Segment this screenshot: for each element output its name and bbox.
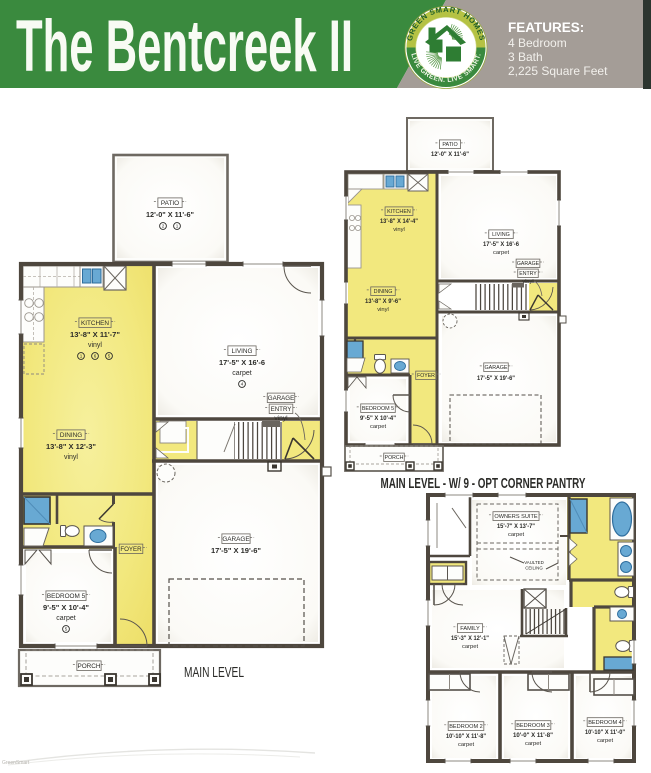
svg-text:PATIO: PATIO <box>161 200 179 207</box>
svg-text:carpet: carpet <box>458 742 475 748</box>
svg-text:KITCHEN: KITCHEN <box>81 320 109 327</box>
svg-text:carpet: carpet <box>508 532 525 538</box>
svg-text:carpet: carpet <box>232 370 252 377</box>
svg-text:KITCHEN: KITCHEN <box>387 209 411 215</box>
svg-text:ENTRY: ENTRY <box>271 406 292 413</box>
svg-text:12'-0" X 11'-6": 12'-0" X 11'-6" <box>431 152 469 158</box>
svg-text:PATIO: PATIO <box>442 142 457 148</box>
svg-text:The Bentcreek II: The Bentcreek II <box>16 6 353 87</box>
svg-text:GARAGE: GARAGE <box>268 395 294 402</box>
svg-text:vinyl: vinyl <box>522 279 533 285</box>
svg-text:carpet: carpet <box>597 738 614 744</box>
svg-text:carpet: carpet <box>462 644 479 650</box>
svg-text:FOYER: FOYER <box>120 546 142 553</box>
svg-text:LIVING: LIVING <box>492 232 510 238</box>
svg-text:LIVING: LIVING <box>232 348 253 355</box>
svg-text:13'-8" X 12'-3": 13'-8" X 12'-3" <box>46 442 96 451</box>
svg-text:MAIN LEVEL - W/ 9 - OPT CORNER: MAIN LEVEL - W/ 9 - OPT CORNER PANTRY <box>381 476 586 492</box>
svg-text:4: 4 <box>241 382 244 387</box>
svg-text:vinyl: vinyl <box>377 307 389 313</box>
svg-text:12'-0" X 11'-6": 12'-0" X 11'-6" <box>146 210 194 219</box>
svg-text:1: 1 <box>80 354 83 359</box>
svg-text:BEDROOM 5: BEDROOM 5 <box>362 406 394 412</box>
svg-text:carpet: carpet <box>370 424 387 430</box>
svg-text:FOYER: FOYER <box>417 373 435 379</box>
svg-text:OWNERS SUITE: OWNERS SUITE <box>494 514 537 520</box>
svg-text:PORCH: PORCH <box>385 455 404 461</box>
svg-text:VAULTED: VAULTED <box>524 560 544 565</box>
svg-text:10'-10" X 11'-8": 10'-10" X 11'-8" <box>446 734 486 740</box>
svg-text:BEDROOM 4: BEDROOM 4 <box>588 720 622 726</box>
svg-text:10'-0" X 11'-8": 10'-0" X 11'-8" <box>513 733 553 739</box>
svg-text:vinyl: vinyl <box>88 342 102 349</box>
svg-text:vinyl: vinyl <box>393 227 405 233</box>
svg-text:9'-5" X 10'-4": 9'-5" X 10'-4" <box>360 416 396 422</box>
svg-text:15'-7" X 13'-7": 15'-7" X 13'-7" <box>497 524 535 530</box>
svg-text:vinyl: vinyl <box>64 454 78 461</box>
svg-text:CEILING: CEILING <box>525 566 543 571</box>
svg-text:carpet: carpet <box>56 615 76 622</box>
svg-text:FEATURES:: FEATURES: <box>508 20 584 35</box>
svg-text:GARAGE: GARAGE <box>484 365 507 371</box>
svg-text:ENTRY: ENTRY <box>519 271 537 277</box>
svg-text:BEDROOM 5: BEDROOM 5 <box>47 593 86 600</box>
svg-text:DINING: DINING <box>60 432 82 439</box>
svg-text:GARAGE: GARAGE <box>517 261 540 267</box>
svg-text:17'-5" X 19'-6": 17'-5" X 19'-6" <box>211 546 261 555</box>
svg-text:4 Bedroom: 4 Bedroom <box>508 36 567 50</box>
svg-text:13'-8" X 11'-7": 13'-8" X 11'-7" <box>70 330 120 339</box>
svg-text:6: 6 <box>94 354 97 359</box>
svg-text:17'-5" X 16'-6: 17'-5" X 16'-6 <box>483 242 520 248</box>
svg-text:13'-8" X 14'-4": 13'-8" X 14'-4" <box>380 219 418 225</box>
svg-text:17'-5" X 16'-6: 17'-5" X 16'-6 <box>219 358 265 367</box>
svg-text:15'-3" X 12'-1": 15'-3" X 12'-1" <box>451 636 489 642</box>
svg-text:MAIN LEVEL: MAIN LEVEL <box>184 665 244 681</box>
svg-text:carpet: carpet <box>525 741 542 747</box>
svg-text:1: 1 <box>176 224 179 229</box>
svg-text:FAMILY: FAMILY <box>460 626 480 632</box>
svg-text:17'-5" X 19'-6": 17'-5" X 19'-6" <box>477 376 515 382</box>
svg-text:carpet: carpet <box>493 250 510 256</box>
svg-text:9'-5" X 10'-4": 9'-5" X 10'-4" <box>43 603 89 612</box>
svg-text:vinyl: vinyl <box>274 415 288 422</box>
svg-text:10'-10" X 11'-0": 10'-10" X 11'-0" <box>585 730 625 736</box>
svg-text:2: 2 <box>162 224 165 229</box>
svg-text:BEDROOM 2: BEDROOM 2 <box>449 724 483 730</box>
svg-text:GARAGE: GARAGE <box>222 536 249 543</box>
svg-text:BEDROOM 3: BEDROOM 3 <box>516 723 550 729</box>
svg-text:DINING: DINING <box>374 289 393 295</box>
svg-text:5: 5 <box>108 354 111 359</box>
svg-text:3 Bath: 3 Bath <box>508 50 543 64</box>
svg-text:PORCH: PORCH <box>77 663 100 670</box>
svg-text:13'-8" X 9'-6": 13'-8" X 9'-6" <box>365 299 401 305</box>
svg-text:GreenSmart: GreenSmart <box>2 760 30 766</box>
svg-text:5: 5 <box>65 627 68 632</box>
svg-text:2,225 Square Feet: 2,225 Square Feet <box>508 64 608 78</box>
